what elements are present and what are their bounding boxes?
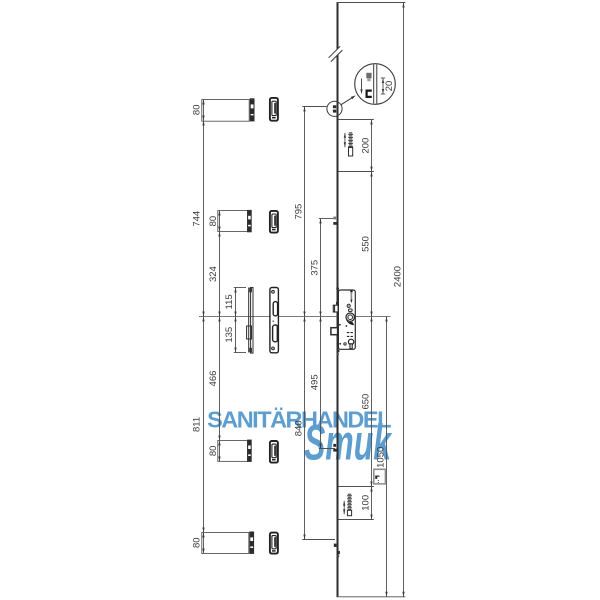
svg-text:20: 20 — [384, 81, 395, 92]
svg-text:324: 324 — [208, 266, 219, 282]
svg-text:80: 80 — [192, 537, 203, 548]
svg-text:80: 80 — [192, 105, 203, 116]
svg-text:1050: 1050 — [375, 447, 386, 468]
svg-text:550: 550 — [360, 236, 371, 252]
svg-text:100: 100 — [360, 495, 371, 511]
svg-text:200: 200 — [360, 138, 371, 154]
svg-text:2400: 2400 — [392, 266, 403, 287]
svg-text:795: 795 — [293, 204, 304, 220]
svg-text:744: 744 — [192, 211, 203, 227]
svg-text:375: 375 — [310, 260, 321, 276]
svg-text:495: 495 — [310, 374, 321, 390]
svg-text:135: 135 — [224, 327, 235, 343]
svg-text:811: 811 — [192, 417, 203, 432]
svg-text:115: 115 — [224, 294, 235, 309]
svg-text:840: 840 — [293, 420, 304, 436]
svg-text:466: 466 — [208, 371, 219, 387]
svg-text:650: 650 — [360, 394, 371, 410]
